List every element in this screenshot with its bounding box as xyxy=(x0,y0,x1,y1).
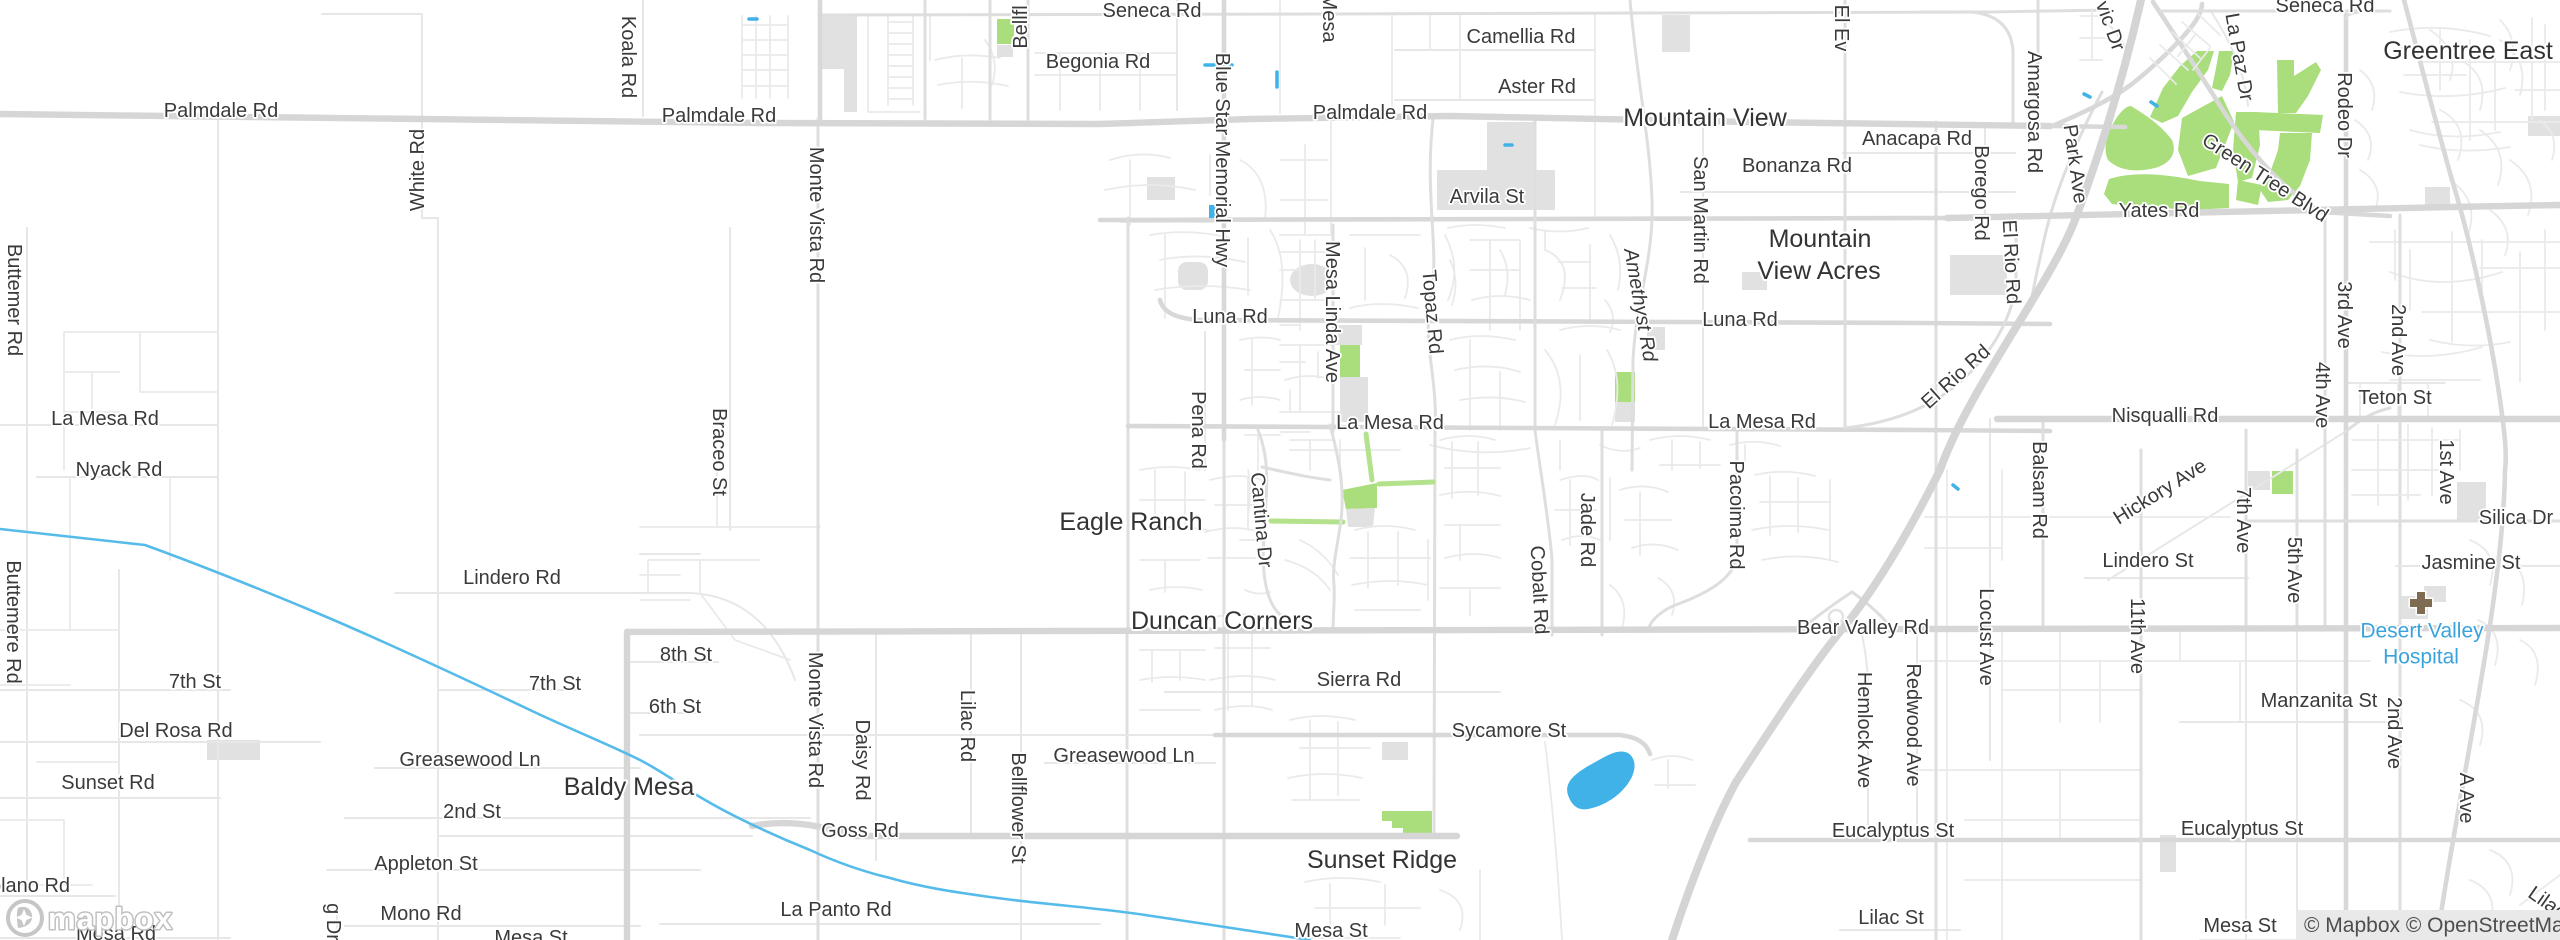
svg-text:Daisy Rd: Daisy Rd xyxy=(851,719,873,800)
svg-text:Buttemere Rd: Buttemere Rd xyxy=(2,560,24,683)
svg-text:Blue Star Memorial Hwy: Blue Star Memorial Hwy xyxy=(1211,53,1233,268)
svg-text:Luna Rd: Luna Rd xyxy=(1702,309,1778,331)
svg-text:Teton St: Teton St xyxy=(2358,387,2432,409)
svg-text:Nyack Rd: Nyack Rd xyxy=(76,459,163,481)
svg-text:Lilac Rd: Lilac Rd xyxy=(956,690,978,762)
svg-text:2nd Ave: 2nd Ave xyxy=(2387,304,2409,376)
svg-text:Palmdale Rd: Palmdale Rd xyxy=(662,105,777,127)
svg-text:La Mesa Rd: La Mesa Rd xyxy=(1708,411,1816,433)
svg-text:Camellia Rd: Camellia Rd xyxy=(1467,26,1576,48)
svg-text:Begonia Rd: Begonia Rd xyxy=(1046,51,1151,73)
svg-text:Seneca Rd: Seneca Rd xyxy=(1103,0,1202,22)
svg-text:View Acres: View Acres xyxy=(1757,257,1880,285)
svg-text:Mesa: Mesa xyxy=(1318,0,1340,43)
svg-text:Monte Vista Rd: Monte Vista Rd xyxy=(805,147,827,283)
svg-text:Arvila St: Arvila St xyxy=(1450,186,1525,208)
svg-text:Greasewood Ln: Greasewood Ln xyxy=(399,749,540,771)
svg-text:Koala Rd: Koala Rd xyxy=(617,16,639,98)
svg-text:6th St: 6th St xyxy=(649,696,702,718)
svg-text:Aster Rd: Aster Rd xyxy=(1498,76,1576,98)
svg-text:Pena Rd: Pena Rd xyxy=(1187,391,1209,469)
svg-text:Yates Rd: Yates Rd xyxy=(2119,200,2200,222)
svg-text:Lindero St: Lindero St xyxy=(2102,550,2194,572)
svg-text:Hemlock Ave: Hemlock Ave xyxy=(1853,672,1875,788)
svg-text:11th Ave: 11th Ave xyxy=(2126,598,2148,674)
svg-text:El Ev: El Ev xyxy=(1830,5,1852,52)
svg-text:White Rd: White Rd xyxy=(407,129,429,211)
svg-text:El Rio Rd: El Rio Rd xyxy=(1998,219,2024,305)
svg-text:7th St: 7th St xyxy=(169,671,222,693)
svg-text:plano Rd: plano Rd xyxy=(0,875,70,897)
svg-text:5th Ave: 5th Ave xyxy=(2283,537,2305,603)
svg-text:Palmdale Rd: Palmdale Rd xyxy=(1313,102,1428,124)
svg-text:Cobalt Rd: Cobalt Rd xyxy=(1526,545,1553,635)
svg-text:Balsam Rd: Balsam Rd xyxy=(2028,441,2050,539)
svg-text:Mesa St: Mesa St xyxy=(1294,920,1368,940)
svg-text:Bellflower St: Bellflower St xyxy=(1007,752,1029,864)
svg-text:Braceo St: Braceo St xyxy=(708,408,730,496)
svg-text:© Mapbox © OpenStreetMap: © Mapbox © OpenStreetMap xyxy=(2304,914,2560,937)
svg-text:Del Rosa Rd: Del Rosa Rd xyxy=(119,720,232,742)
svg-text:Lilac St: Lilac St xyxy=(1858,907,1924,929)
svg-text:Greentree East: Greentree East xyxy=(2383,37,2553,65)
svg-text:Rodeo Dr: Rodeo Dr xyxy=(2333,72,2355,158)
svg-text:Buttemer Rd: Buttemer Rd xyxy=(3,244,25,356)
svg-text:3rd Ave: 3rd Ave xyxy=(2333,281,2355,348)
svg-text:Luna Rd: Luna Rd xyxy=(1192,306,1268,328)
svg-text:La Mesa Rd: La Mesa Rd xyxy=(51,408,159,430)
svg-text:Pacoima Rd: Pacoima Rd xyxy=(1725,461,1747,570)
svg-text:mapbox: mapbox xyxy=(48,901,173,936)
svg-text:San Martin Rd: San Martin Rd xyxy=(1689,156,1711,284)
svg-text:7th St: 7th St xyxy=(529,673,582,695)
svg-text:Seneca Rd: Seneca Rd xyxy=(2276,0,2375,17)
svg-text:Palmdale Rd: Palmdale Rd xyxy=(164,100,279,122)
svg-text:Redwood Ave: Redwood Ave xyxy=(1902,663,1924,786)
svg-text:8th St: 8th St xyxy=(660,644,713,666)
svg-text:Baldy Mesa: Baldy Mesa xyxy=(564,773,695,801)
svg-text:Jasmine St: Jasmine St xyxy=(2422,552,2521,574)
svg-text:Nisqualli Rd: Nisqualli Rd xyxy=(2112,405,2219,427)
svg-text:Mountain: Mountain xyxy=(1769,225,1872,253)
svg-text:1st Ave: 1st Ave xyxy=(2435,439,2457,504)
svg-text:g Dr: g Dr xyxy=(322,903,344,940)
svg-text:Eucalyptus St: Eucalyptus St xyxy=(1832,820,1955,842)
svg-text:Manzanita St: Manzanita St xyxy=(2261,690,2378,712)
svg-text:Eagle Ranch: Eagle Ranch xyxy=(1059,508,1202,536)
svg-text:Sunset Rd: Sunset Rd xyxy=(61,772,154,794)
svg-text:A Ave: A Ave xyxy=(2455,773,2477,824)
svg-text:Mono Rd: Mono Rd xyxy=(380,903,461,925)
svg-text:Bear Valley Rd: Bear Valley Rd xyxy=(1797,617,1929,639)
svg-text:Borego Rd: Borego Rd xyxy=(1970,145,1992,241)
svg-text:2nd St: 2nd St xyxy=(443,801,501,823)
svg-text:Mesa St: Mesa St xyxy=(494,927,568,940)
svg-text:Mountain View: Mountain View xyxy=(1623,104,1787,132)
svg-text:Sierra Rd: Sierra Rd xyxy=(1317,669,1401,691)
svg-text:Sycamore St: Sycamore St xyxy=(1452,720,1567,742)
svg-text:Bonanza Rd: Bonanza Rd xyxy=(1742,155,1852,177)
svg-text:Mesa Linda Ave: Mesa Linda Ave xyxy=(1321,241,1343,383)
svg-text:4th Ave: 4th Ave xyxy=(2311,362,2333,428)
svg-text:Locust Ave: Locust Ave xyxy=(1975,588,1997,685)
svg-text:Bellfl: Bellfl xyxy=(1010,5,1032,48)
svg-text:Eucalyptus St: Eucalyptus St xyxy=(2181,818,2304,840)
svg-text:Duncan Corners: Duncan Corners xyxy=(1131,607,1313,635)
svg-text:Desert Valley: Desert Valley xyxy=(2360,620,2484,643)
svg-text:La Panto Rd: La Panto Rd xyxy=(780,899,891,921)
svg-text:Hospital: Hospital xyxy=(2383,646,2459,669)
svg-text:Amargosa Rd: Amargosa Rd xyxy=(2023,51,2045,173)
svg-text:Silica Dr: Silica Dr xyxy=(2479,507,2554,529)
svg-text:Monte Vista Rd: Monte Vista Rd xyxy=(804,652,826,788)
svg-text:Appleton St: Appleton St xyxy=(374,853,478,875)
svg-text:Jade Rd: Jade Rd xyxy=(1576,493,1598,568)
svg-text:Anacapa Rd: Anacapa Rd xyxy=(1862,128,1972,150)
svg-text:Greasewood Ln: Greasewood Ln xyxy=(1053,745,1194,767)
svg-text:Mesa St: Mesa St xyxy=(2203,915,2277,937)
svg-text:2nd Ave: 2nd Ave xyxy=(2383,697,2405,769)
svg-text:La Mesa Rd: La Mesa Rd xyxy=(1336,412,1444,434)
svg-text:Lindero Rd: Lindero Rd xyxy=(463,567,561,589)
svg-text:Sunset Ridge: Sunset Ridge xyxy=(1307,846,1457,874)
svg-text:7th Ave: 7th Ave xyxy=(2232,487,2254,553)
svg-text:Goss Rd: Goss Rd xyxy=(821,820,899,842)
